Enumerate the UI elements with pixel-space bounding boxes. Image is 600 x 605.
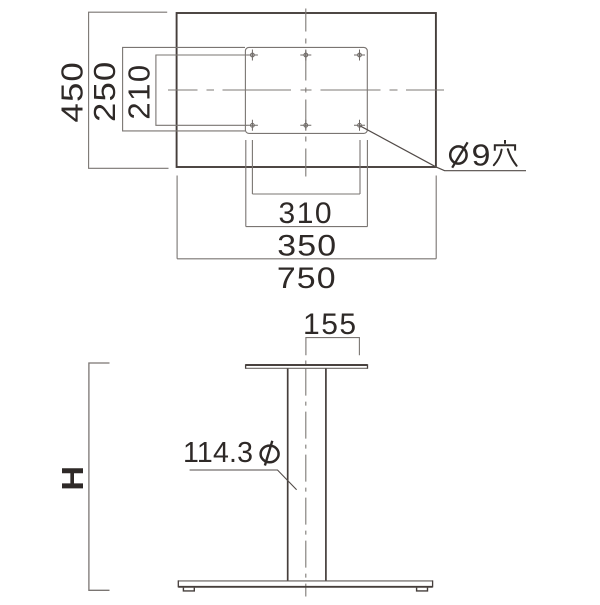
svg-text:750: 750 xyxy=(277,261,337,295)
svg-text:H: H xyxy=(56,464,90,490)
svg-text:9: 9 xyxy=(471,138,492,172)
svg-text:450: 450 xyxy=(54,61,89,122)
svg-text:114.3: 114.3 xyxy=(183,437,253,469)
svg-text:310: 310 xyxy=(279,197,334,230)
svg-text:210: 210 xyxy=(121,63,156,119)
svg-text:350: 350 xyxy=(277,228,337,262)
svg-text:250: 250 xyxy=(87,61,122,122)
svg-text:155: 155 xyxy=(303,308,358,341)
